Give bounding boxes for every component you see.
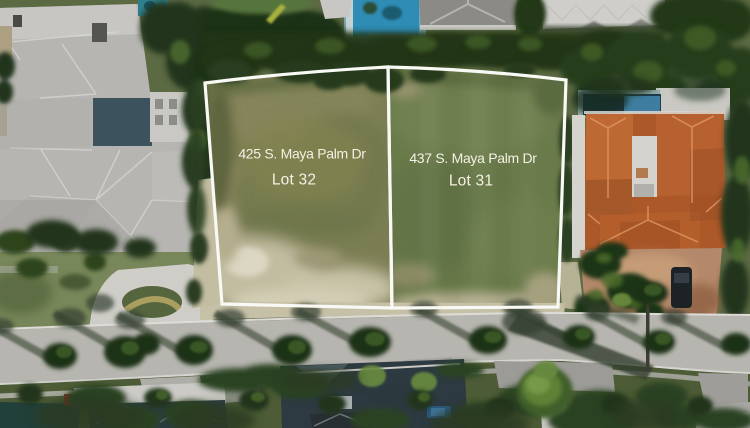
svg-text:Lot 31: Lot 31 [449,173,493,190]
svg-text:Lot 32: Lot 32 [272,172,316,189]
svg-text:437 S. Maya Palm Dr: 437 S. Maya Palm Dr [409,150,537,166]
svg-text:425 S. Maya Palm Dr: 425 S. Maya Palm Dr [238,146,366,162]
